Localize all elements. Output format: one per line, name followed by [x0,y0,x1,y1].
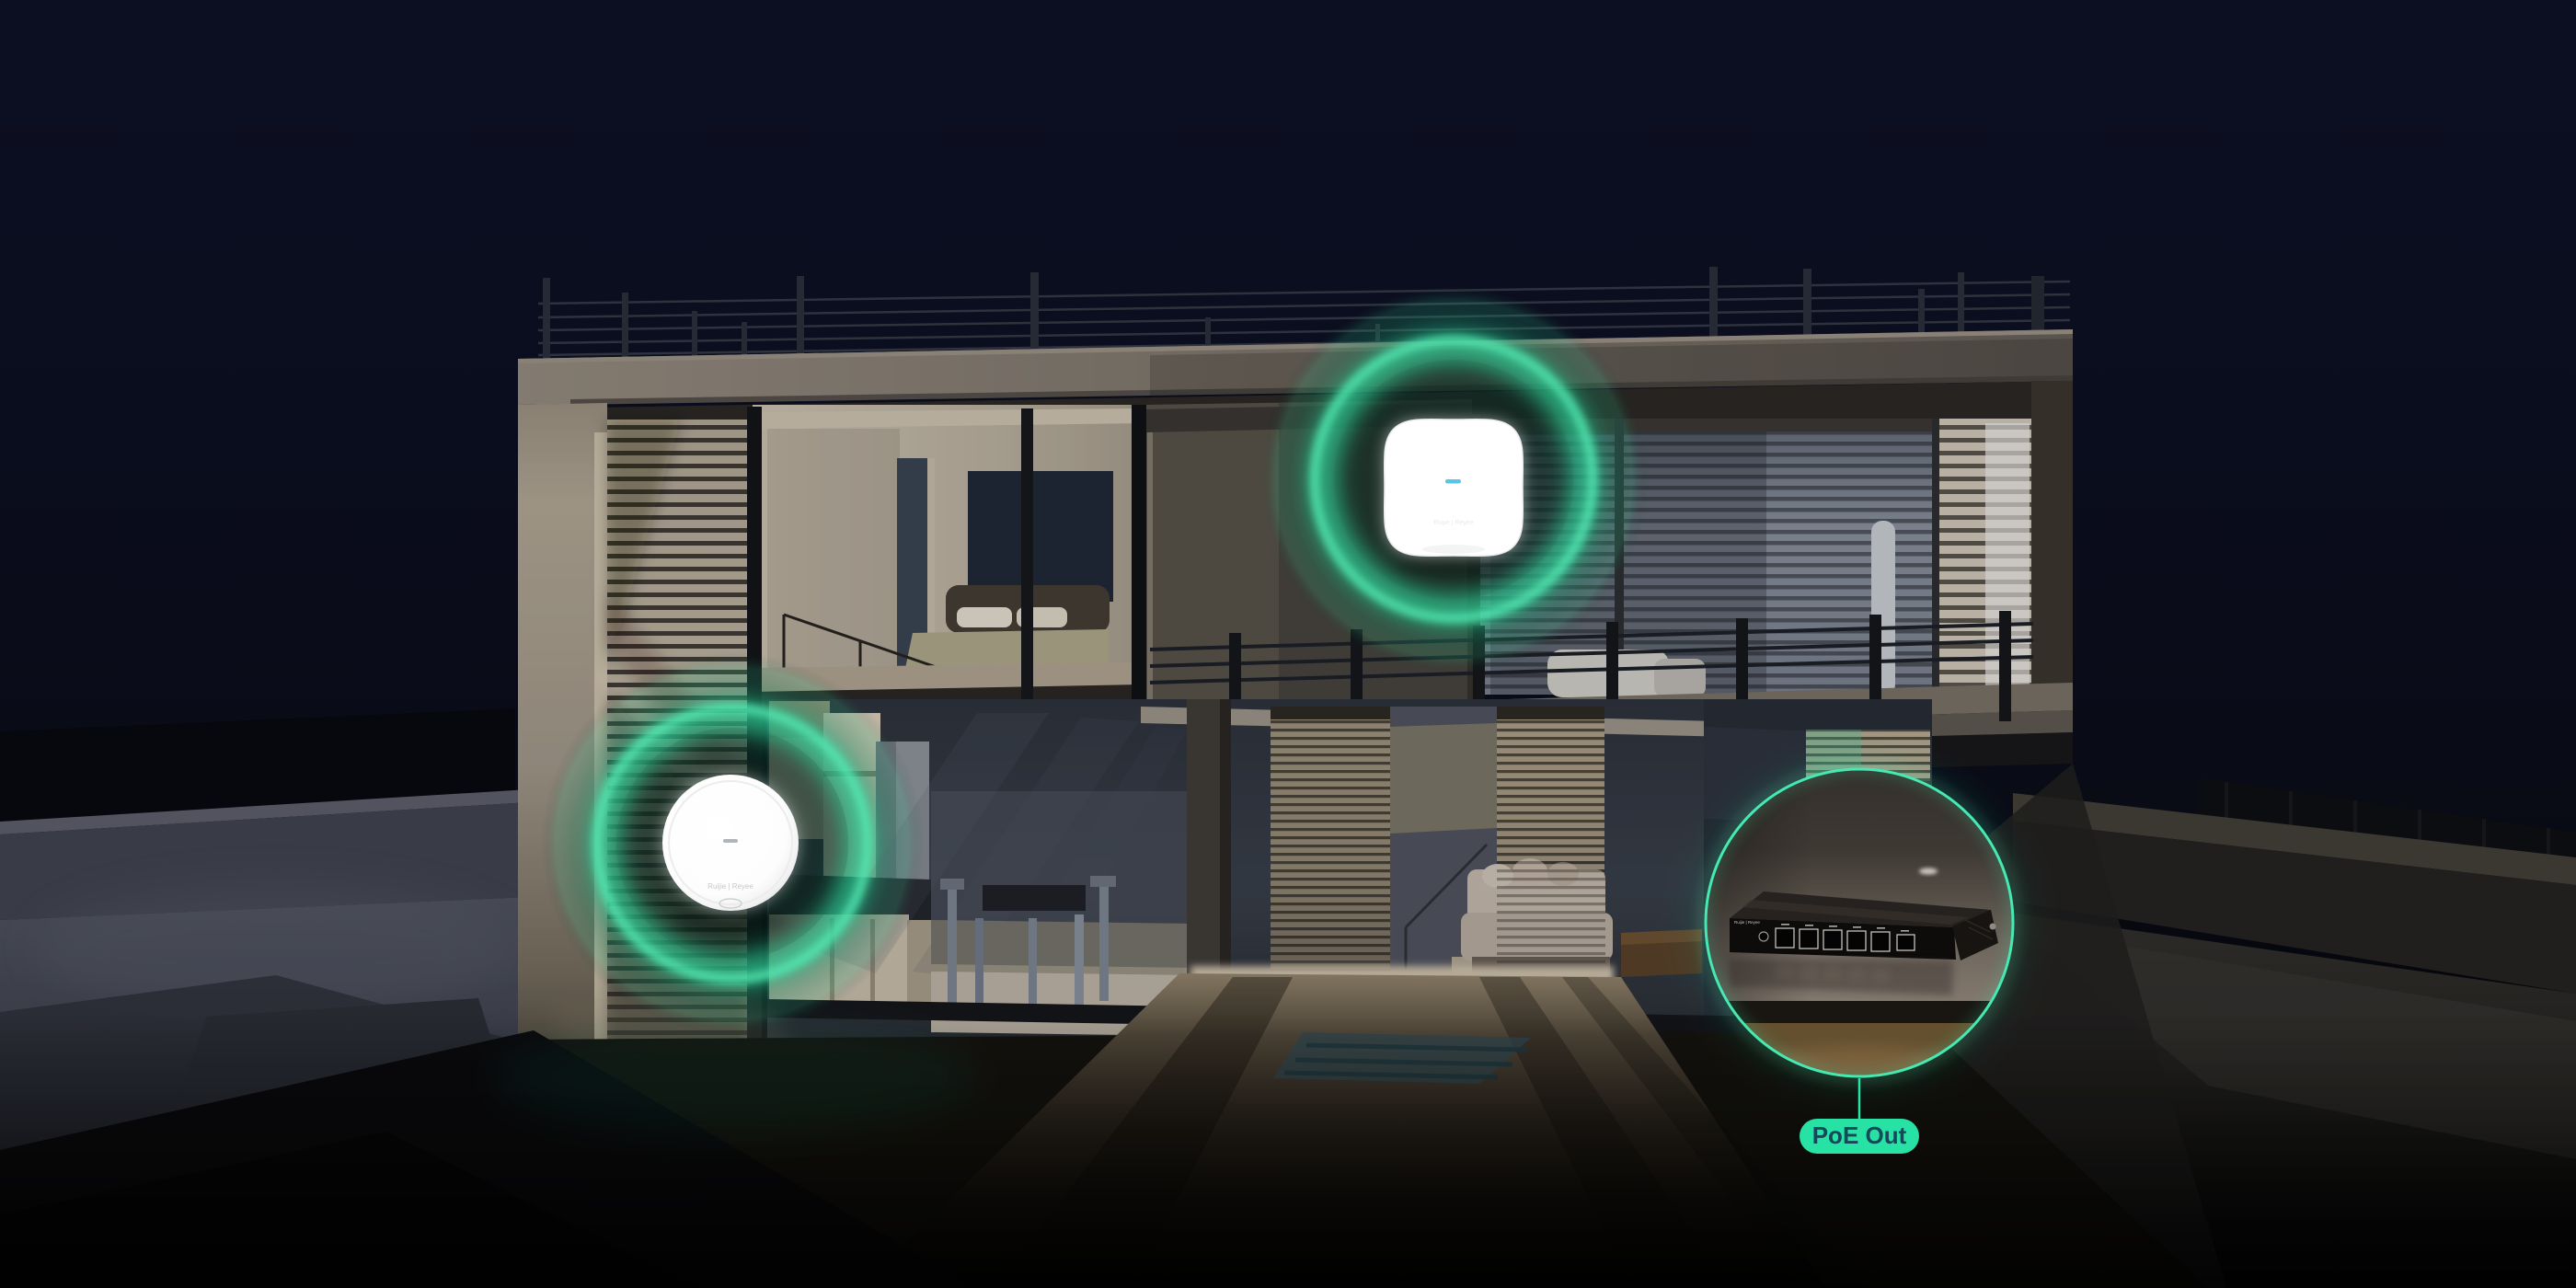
svg-text:Ruijie | Reyee: Ruijie | Reyee [1433,520,1474,526]
svg-text:Ruijie | Reyee: Ruijie | Reyee [1734,920,1760,925]
svg-text:Ruijie | Reyee: Ruijie | Reyee [707,882,753,891]
svg-text:PoE Out: PoE Out [1812,1121,1907,1149]
